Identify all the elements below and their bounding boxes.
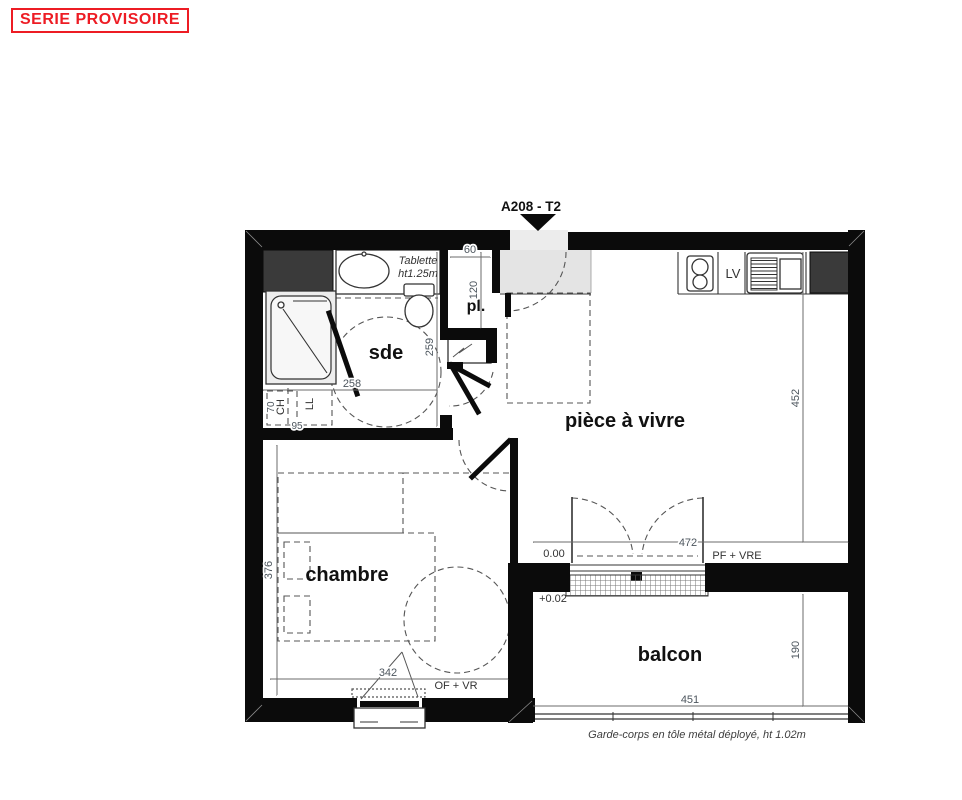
duct-shaft-right [810, 252, 850, 293]
wall-segment [245, 230, 263, 722]
wall-segment [508, 563, 533, 723]
room-label-balcony: balcon [638, 644, 702, 666]
duct-shaft-left [263, 250, 333, 292]
balcony-door-leaves [572, 497, 703, 563]
wall-corner-marks [246, 231, 864, 722]
wall-segment [568, 232, 865, 250]
room-label-placard: pl. [467, 298, 486, 315]
wardrobe-zone [278, 473, 403, 533]
railing-note: Garde-corps en tôle métal déployé, ht 1.… [588, 729, 806, 741]
entry-hall-zone [507, 293, 590, 403]
provisional-series-stamp: SERIE PROVISOIRE [11, 8, 189, 33]
hob-burner [692, 259, 708, 275]
dim-label-95: 95 [291, 421, 303, 432]
turning-circle-bedroom [404, 567, 510, 673]
entry-floor-shading [500, 250, 591, 293]
wall-segment [245, 698, 357, 722]
toilet-tank [404, 284, 434, 296]
hob-burner [693, 275, 707, 289]
bed [278, 533, 435, 641]
wall-segment [848, 230, 865, 723]
shower-drain [278, 302, 284, 308]
dim-label-60: 60 [464, 244, 476, 256]
level-label-balcony: +0.02 [539, 593, 567, 605]
unit-label: A208 - T2 [501, 199, 561, 214]
balcony-grating [566, 575, 708, 596]
room-label-living: pièce à vivre [565, 410, 685, 432]
balcony-door-swing-arc-left [572, 498, 633, 554]
dim-label-190: 190 [790, 641, 802, 659]
bedroom-window-type-label: OF + VR [434, 680, 477, 692]
railing-ticks [613, 712, 773, 721]
toilet-bowl [405, 295, 433, 327]
sink-basin [780, 259, 801, 289]
wall-segment [505, 293, 511, 317]
floor-plan-page: SERIE PROVISOIRE [0, 0, 962, 800]
entrance-marker-icon [520, 214, 556, 231]
washing-machine-label: LL [304, 398, 316, 410]
wall-segment [492, 250, 500, 293]
dim-label-472: 472 [679, 537, 697, 549]
dim-label-452: 452 [790, 389, 802, 407]
bedroom-door-leaf [472, 441, 509, 477]
dim-label-258: 258 [343, 378, 361, 390]
dim-label-259: 259 [424, 338, 436, 356]
wall-segment [510, 438, 518, 565]
dim-label-342: 342 [379, 667, 397, 679]
shelf-note-line1: Tablette [399, 255, 438, 267]
window-sill [354, 708, 425, 728]
dim-label-120: 120 [468, 281, 480, 299]
room-label-sde: sde [369, 342, 403, 364]
window-glazing [360, 701, 419, 707]
pillow [284, 596, 310, 633]
balcony-railing [533, 714, 848, 719]
dimension-lines [263, 252, 848, 706]
wall-segment [705, 563, 848, 592]
dim-label-451: 451 [681, 694, 699, 706]
dishwasher-label: LV [726, 266, 741, 281]
window-reservation [352, 689, 425, 697]
walls [245, 230, 865, 723]
wall-segment [533, 563, 570, 592]
room-label-bedroom: chambre [305, 564, 388, 586]
washbasin [339, 254, 389, 288]
level-label-living: 0.00 [543, 548, 564, 560]
dim-label-376: 376 [263, 561, 275, 579]
wall-segment [440, 415, 452, 428]
dim-label-70: 70 [266, 401, 277, 413]
wall-segment [440, 250, 448, 340]
wall-segment [486, 340, 497, 363]
sink-drainer [751, 258, 777, 290]
wall-segment [448, 328, 497, 340]
electrical-panel [448, 339, 491, 363]
balcony-door-type-label: PF + VRE [712, 550, 761, 562]
entry-door-opening [510, 230, 568, 250]
shelf-note-line2: ht1.25m [398, 268, 438, 280]
floor-plan-drawing: A208 - T2 sde pl. pièce à vivre chambre … [0, 0, 962, 800]
washbasin-faucet [362, 252, 366, 256]
